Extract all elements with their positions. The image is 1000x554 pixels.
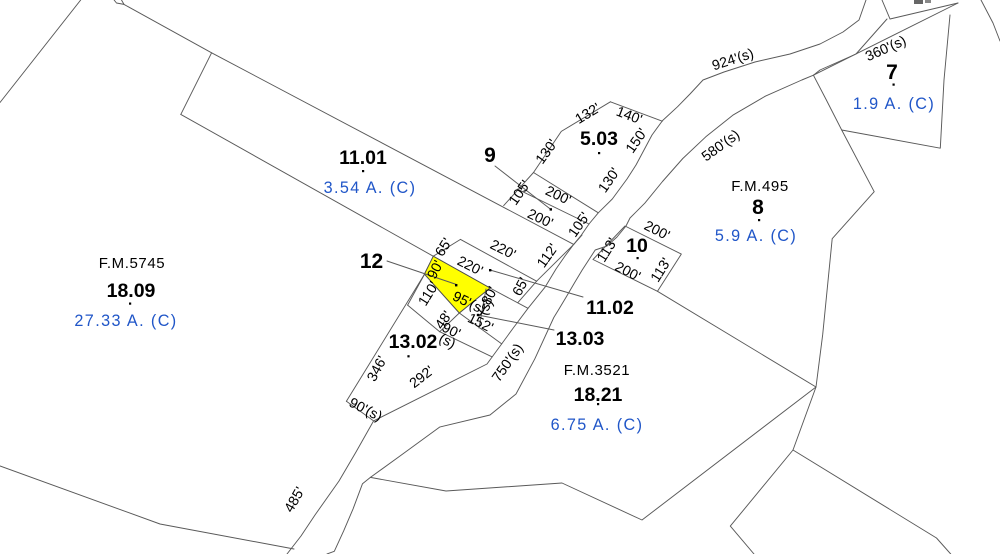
svg-text:13.03: 13.03 (556, 328, 605, 350)
svg-text:7: 7 (886, 61, 898, 84)
svg-text:5.03: 5.03 (580, 128, 618, 150)
svg-text:F.M.495: F.M.495 (731, 178, 789, 195)
svg-text:11.01: 11.01 (339, 147, 387, 169)
svg-text:5.9 A. (C): 5.9 A. (C) (715, 227, 797, 245)
svg-text:18.09: 18.09 (107, 280, 156, 302)
svg-text:10: 10 (626, 235, 648, 257)
svg-text:6.75 A. (C): 6.75 A. (C) (551, 416, 644, 434)
svg-text:27.33 A. (C): 27.33 A. (C) (74, 312, 177, 330)
svg-text:9: 9 (484, 144, 496, 167)
svg-text:8: 8 (752, 196, 764, 219)
svg-text:12: 12 (360, 250, 383, 273)
svg-text:11.02: 11.02 (586, 297, 634, 319)
svg-text:F.M.3521: F.M.3521 (564, 362, 631, 379)
svg-text:F.M.5745: F.M.5745 (99, 255, 166, 272)
svg-text:18.21: 18.21 (574, 384, 623, 406)
svg-text:13.02: 13.02 (389, 331, 438, 353)
svg-text:3.54 A. (C): 3.54 A. (C) (324, 179, 417, 197)
svg-text:1.9 A. (C): 1.9 A. (C) (853, 95, 935, 113)
